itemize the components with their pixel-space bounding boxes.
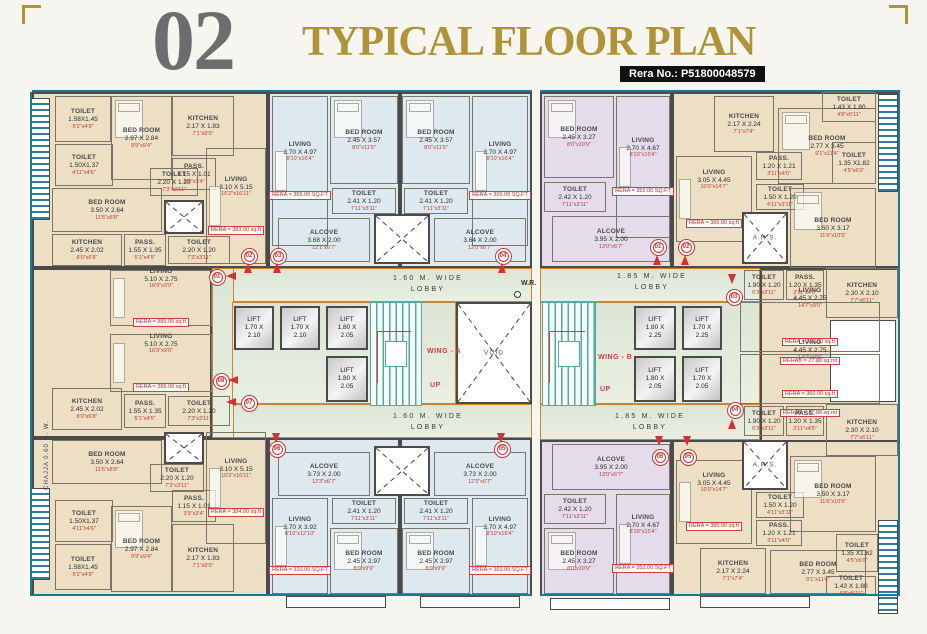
room-dimensions: 2.41 X 1.20 [347,508,380,516]
room-name: BED ROOM [88,451,125,459]
room-toilet: TOILET1.43 X 1.804'8"x5'11" [826,576,876,596]
room-name: LIVING [208,458,264,466]
balcony-strip [420,596,520,608]
lift-label: LIFT1.80 X2.05 [338,316,357,340]
room-toilet: TOILET1.58X1.455'2"x4'9" [55,96,111,142]
room-label: KITCHEN2.17 X 2.247'1"x7'4" [727,113,760,135]
flat-number-ring: 04 [730,405,741,416]
room-label: ALCOVE3.73 X 2.0012'3"x6'7" [307,463,340,485]
shaft-label: A.H.S. [744,235,786,242]
room-dimensions-imperial: 4'11"x3'11" [763,510,796,517]
room-name: LIVING [133,268,189,276]
room-name: TOILET [747,274,780,282]
room-dimensions: 1.50X1.37 [69,162,99,170]
flat-number-ring: 02 [244,251,255,262]
room-dimensions: 3.64 X 2.00 [463,237,496,245]
shaft-void: VOID [456,302,532,404]
room-toilet: TOILET2.41 X 1.207'11"x3'11" [332,498,396,524]
room-name: PASS. [788,274,821,282]
cross-hatch-icon [166,202,202,232]
lobby-width-text: 1.85 M. WIDE [615,413,685,420]
room-dimensions-imperial: 8'0"x6'8" [70,255,103,262]
cross-hatch-icon [376,216,428,262]
room-dimensions: 1.35 X1.82 [838,160,869,168]
room-dimensions: 5.10 X 2.75 [133,341,189,349]
wr-label: W.R. [521,280,536,287]
room-label: BED ROOM3.50 X 3.1711'6"x10'5" [814,483,851,505]
room-name: LIVING [208,176,264,184]
room-dimensions: 2.97 X 2.84 [123,135,160,143]
room-dimensions: 1.20 X 1.21 [762,163,795,171]
room-label: TOILET1.35 X1.824'5"x6'0" [841,542,872,564]
room-dimensions-imperial: 5'1"x4'5" [128,255,161,262]
balcony-strip [286,596,386,608]
entry-arrow-icon [244,263,252,273]
room-label: PASS.1.20 X 1.353'11"x4'5" [788,410,821,432]
flat-number-marker: 03 [726,289,743,306]
room-dimensions-imperial: 5'2"x4'9" [68,572,98,579]
room-name: TOILET [157,171,190,179]
room-name: TOILET [834,575,867,583]
room-dimensions-imperial: 7'11"x3'11" [558,202,591,209]
stair-route [377,331,411,332]
room-dimensions: 2.45 X 3.57 [417,137,454,145]
room-label: LIVING2.70 X 4.678'10"x15'4"RERA = 352.0… [612,137,674,198]
sofa-icon [113,343,125,383]
room-dimensions-imperial: 12'3"x6'7" [307,479,340,486]
room-name: ALCOVE [463,229,496,237]
chajja-balcony [878,94,898,192]
flat-number-ring: 07 [244,398,255,409]
room-bed-room: BED ROOM2.45 X 2.978'0"x9'9" [330,528,398,594]
room-dimensions: 2.17 X 2.24 [716,568,749,576]
rera-area-badge: RERA = 320.00 SQ.FT [269,566,331,575]
duct-shaft [374,214,430,264]
room-dimensions-imperial: 10'2"x16'11" [208,473,264,480]
room-kitchen: KITCHEN2.45 X 2.028'0"x6'8" [52,234,122,266]
flat-number-marker: 01 [209,269,226,286]
room-label: LIVING5.10 X 2.7516'9"x9'0"RERA = 385.00… [133,268,189,329]
room-kitchen: KITCHEN2.17 X 2.247'1"x7'4" [700,548,766,594]
room-dimensions: 5.10 X 2.75 [133,276,189,284]
room-living: LIVING5.10 X 2.7516'9"x9'0"RERA = 385.00… [110,334,212,392]
flat-number-ring: 03 [273,251,284,262]
room-dimensions-imperial: 9'9"x9'4" [123,554,160,561]
room-dimensions: 2.17 X 2.24 [727,121,760,129]
room-dimensions: 2.20 X 1.20 [182,408,215,416]
flat-number-ring: 05 [683,452,694,463]
room-living: LIVING2.70 X 3.928'10"x12'10"RERA = 320.… [272,498,328,594]
room-dimensions: 2.70 X 4.97 [469,524,531,532]
room-toilet: TOILET1.58X1.455'2"x4'9" [55,544,111,590]
room-toilet: TOILET2.42 X 1.207'11"x3'11" [544,182,606,212]
lift-label: LIFT1.70 X2.25 [693,316,712,340]
entry-arrow-icon [497,433,505,443]
up-label-b: UP [600,386,611,393]
room-name: BED ROOM [560,550,597,558]
lift-shaft: LIFT1.80 X2.05 [326,356,368,402]
room-dimensions: 2.42 X 1.20 [558,506,591,514]
lift-label: LIFT1.70 X2.10 [245,316,264,340]
room-dimensions-imperial: 13'0"x6'7" [594,472,627,479]
room-dimensions-imperial: 12'3"x6'7" [463,479,496,486]
lift-shaft: LIFT1.70 X2.10 [280,306,320,350]
room-label: LIVING2.70 X 4.978'10"x16'4"RERA = 365.0… [469,141,531,202]
room-name: TOILET [419,190,452,198]
entry-arrow-icon [226,272,236,280]
room-living: LIVING5.10 X 2.7516'9"x9'0"RERA = 385.00… [110,270,212,326]
room-name: PASS. [762,522,795,530]
flat-number-marker: 04 [727,402,744,419]
rera-area-badge: RERA = 385.00 sq.ft [686,522,742,531]
room-toilet: TOILET2.41 X 1.207'11"x3'11" [332,188,396,214]
room-name: PASS. [128,239,161,247]
room-name: BED ROOM [123,538,160,546]
lobby-label: 1.85 M. WIDELOBBY [582,272,722,292]
room-dimensions: 2.45 X 2.02 [70,406,103,414]
room-label: TOILET1.90 X 1.206'3"x3'11" [747,410,780,432]
lift-label: LIFT1.80 X2.05 [338,367,357,391]
room-name: LIVING [686,169,742,177]
room-name: KITCHEN [186,115,219,123]
shaft-a-h-s: A.H.S. [742,440,788,490]
room-label: TOILET1.58X1.455'2"x4'9" [68,556,98,578]
room-name: TOILET [69,510,99,518]
flat-number-ring: 05 [497,444,508,455]
room-living: LIVING4.45 X 2.7514'7"x9'0"RERA = 360.00… [740,354,880,404]
room-dimensions: 3.50 X 3.17 [814,491,851,499]
room-name: BED ROOM [814,483,851,491]
room-name: KITCHEN [727,113,760,121]
room-name: KITCHEN [716,560,749,568]
rera-area-badge: RERA = 365.00 SQ.FT [469,191,531,200]
room-dimensions: 2.70 X 4.67 [612,145,674,153]
room-label: BED ROOM2.45 X 3.578'0"x11'9" [417,129,454,151]
room-toilet: TOILET2.20 X 1.207'3"x3'11" [168,236,230,264]
room-dimensions-imperial: 8'0"x11'9" [417,145,454,152]
rera-area-badge: RERA = 384.00 sq.ft [208,508,264,517]
lobby-label: 1.85 M. WIDELOBBY [580,412,720,432]
room-label: PASS.1.20 X 1.213'11"x4'0" [762,155,795,177]
room-dimensions-imperial: 3'9"x3'4" [177,511,210,518]
room-dimensions: 2.41 X 1.20 [419,508,452,516]
room-dimensions-imperial: 7'7"x6'11" [845,435,878,442]
room-dimensions: 1.55 X 1.35 [128,247,161,255]
lift-shaft: LIFT1.80 X2.25 [634,306,676,350]
entry-arrow-icon [728,274,736,284]
flat-number-ring: 08 [216,376,227,387]
chajja-balcony [878,520,898,614]
room-label: TOILET1.50 X 1.204'11"x3'11" [763,494,796,516]
room-name: LIVING [469,516,531,524]
entry-arrow-icon [226,398,236,406]
lobby-label: 1.60 M. WIDELOBBY [358,412,498,432]
room-dimensions-imperial: 7'3"x3'11" [160,483,193,490]
room-dimensions-imperial: 10'0"x14'7" [686,184,742,191]
room-dimensions: 3.95 X 2.00 [594,236,627,244]
room-label: BED ROOM2.45 X 3.578'0"x11'9" [345,129,382,151]
room-dimensions: 3.05 X 4.45 [686,177,742,185]
flat-number-marker: 05 [494,441,511,458]
flat-number-ring: 01 [653,242,664,253]
room-dimensions: 3.95 X 2.00 [594,464,627,472]
duct-shaft [164,432,204,464]
room-dimensions: 1.15 X 1.01 [177,503,210,511]
room-alcove: ALCOVE3.64 X 2.0012'0"x6'7" [434,218,526,262]
room-name: PASS. [128,400,161,408]
room-dimensions: 2.77 X 3.45 [808,143,845,151]
rera-area-badge: RERA = 352.00 SQ.FT [612,187,674,196]
lobby-label: 1.60 M. WIDELOBBY [358,274,498,294]
room-label: TOILET2.42 X 1.207'11"x3'11" [558,186,591,208]
room-dimensions-imperial: 14'7"x9'0" [780,355,840,362]
entry-arrow-icon [655,436,663,446]
room-dimensions-imperial: 7'3"x3'11" [182,416,215,423]
room-living: LIVING3.05 X 4.4510'0"x14'7"RERA = 385.0… [676,156,752,242]
room-dimensions-imperial: 3'11"x4'0" [762,171,795,178]
chajja-balcony [30,98,50,220]
room-living: LIVING2.70 X 4.678'10"x15'4"RERA = 352.0… [616,494,670,594]
lift-label: LIFT1.70 X2.05 [693,367,712,391]
duct-shaft [374,446,430,496]
room-dimensions-imperial: 13'0"x6'7" [594,244,627,251]
room-label: KITCHEN2.45 X 2.028'0"x6'8" [70,239,103,261]
exterior-wall-accent [540,90,900,92]
room-dimensions: 1.58X1.45 [68,564,98,572]
room-dimensions-imperial: 7'11"x3'11" [419,206,452,213]
room-dimensions: 2.41 X 1.20 [347,198,380,206]
room-pass: PASS.1.55 X 1.355'1"x4'5" [124,394,166,428]
room-bed-room: BED ROOM3.50 X 3.1711'6"x10'5" [790,456,876,532]
room-label: BED ROOM2.77 X 3.459'1"x11'4" [799,561,836,583]
room-name: ALCOVE [307,463,340,471]
room-dimensions-imperial: 5'1"x4'5" [128,416,161,423]
room-dimensions: 2.70 X 4.97 [469,149,531,157]
room-dimensions-imperial: 6'3"x3'11" [747,426,780,433]
room-dimensions-imperial: 7'3"x3'11" [182,255,215,262]
room-dimensions-imperial: 8'0"x9'9" [345,566,382,573]
room-dimensions-imperial: 7'11"x3'11" [347,206,380,213]
up-label-a: UP [430,382,441,389]
room-name: ALCOVE [463,463,496,471]
room-dimensions: 1.90 X 1.20 [747,418,780,426]
flat-number-ring: 06 [655,452,666,463]
room-dimensions-imperial: 9'1"x11'4" [799,577,836,584]
room-label: TOILET1.50X1.374'11"x4'6" [69,510,99,532]
room-label: TOILET1.50 X 1.204'11"x3'11" [763,186,796,208]
room-label: PASS.1.55 X 1.355'1"x4'5" [128,400,161,422]
room-dimensions-imperial: 8'10"x16'4" [469,156,531,163]
room-name: ALCOVE [594,456,627,464]
floor-plan-page: 02 TYPICAL FLOOR PLAN Rera No.: P5180004… [0,0,927,634]
room-label: TOILET1.35 X1.824'5"x6'0" [838,152,869,174]
room-dimensions-imperial: 10'2"x16'11" [208,191,264,198]
room-name: TOILET [558,186,591,194]
room-dimensions: 1.58X1.45 [68,116,98,124]
room-name: TOILET [68,556,98,564]
entry-arrow-icon [728,419,736,429]
room-name: LIVING [269,516,331,524]
room-name: KITCHEN [70,239,103,247]
room-name: LIVING [780,287,840,295]
room-label: BED ROOM2.97 X 2.849'9"x9'4" [123,538,160,560]
room-dimensions: 3.73 X 2.00 [463,471,496,479]
flat-number-marker: 02 [678,239,695,256]
room-label: TOILET2.41 X 1.207'11"x3'11" [419,500,452,522]
room-kitchen: KITCHEN2.17 X 2.247'1"x7'4" [714,96,774,152]
rera-area-badge: RERA = 385.00 sq.ft [133,383,189,392]
stair-route [549,331,550,383]
room-label: TOILET2.41 X 1.207'11"x3'11" [347,190,380,212]
room-name: PASS. [177,163,210,171]
room-dimensions-imperial: 8'10"x16'4" [269,156,331,163]
rera-area-badge: RERA = 366.00 SQ.FT [269,191,331,200]
lobby-width-text: 1.60 M. WIDE [393,413,463,420]
room-name: TOILET [182,239,215,247]
chajja-balcony [30,488,50,580]
room-label: TOILET2.41 X 1.207'11"x3'11" [347,500,380,522]
room-dimensions-imperial: 7'11"x3'11" [347,516,380,523]
room-dimensions-imperial: 8'10"x15'4" [612,529,674,536]
room-alcove: ALCOVE3.95 X 2.0013'0"x6'7" [552,444,670,490]
room-label: KITCHEN2.30 X 2.107'7"x6'11" [845,282,878,304]
room-bed-room: BED ROOM2.45 X 3.278'0"x10'9" [544,96,614,178]
room-dimensions: 2.70 X 3.92 [269,524,331,532]
exterior-wall-accent [32,594,532,596]
room-bed-room: BED ROOM3.50 X 2.6411'6"x8'8" [52,188,162,232]
room-label: BED ROOM3.50 X 2.6411'6"x8'8" [88,451,125,473]
room-name: TOILET [558,498,591,506]
room-dimensions: 2.77 X 3.45 [799,569,836,577]
room-toilet: TOILET2.20 X 1.207'3"x3'11" [150,464,204,492]
room-name: BED ROOM [417,550,454,558]
lobby-text: LOBBY [633,424,667,431]
lift-label: LIFT1.70 X2.10 [291,316,310,340]
room-dimensions: 2.41 X 1.20 [419,198,452,206]
entry-arrow-icon [681,255,689,265]
room-label: BED ROOM3.50 X 2.6411'6"x8'8" [88,199,125,221]
room-name: BED ROOM [88,199,125,207]
lobby-width-text: 1.60 M. WIDE [393,275,463,282]
flat-number-marker: 05 [680,449,697,466]
room-label: TOILET1.50X1.374'11"x4'6" [69,154,99,176]
room-toilet: TOILET1.50X1.374'11"x4'6" [55,500,113,542]
room-label: TOILET1.58X1.455'2"x4'9" [68,108,98,130]
room-dimensions: 1.43 X 1.80 [834,583,867,591]
staircase [542,302,596,406]
room-dimensions-imperial: 9'9"x9'4" [123,143,160,150]
room-dimensions-imperial: 8'10"x16'4" [469,531,531,538]
room-name: KITCHEN [845,282,878,290]
room-dimensions: 1.20 X 1.21 [762,530,795,538]
room-dimensions: 2.30 X 2.10 [845,427,878,435]
room-label: KITCHEN2.17 X 1.837'1"x6'0" [186,547,219,569]
room-label: ALCOVE3.73 X 2.0012'3"x6'7" [463,463,496,485]
room-pass: PASS.1.20 X 1.353'11"x4'5" [786,406,824,436]
room-label: TOILET2.20 X 1.207'3"x3'11" [182,400,215,422]
room-dimensions: 3.50 X 3.17 [814,225,851,233]
room-pass: PASS.1.20 X 1.213'11"x4'0" [756,152,802,180]
room-dimensions: 3.50 X 2.64 [88,459,125,467]
entry-arrow-icon [273,263,281,273]
room-dimensions-imperial: 3'11"x4'5" [788,426,821,433]
rera-area-badge: RERA = 360.00 sq.ft [782,390,838,399]
room-kitchen: KITCHEN2.17 X 1.837'1"x6'0" [172,524,234,592]
room-label: KITCHEN2.17 X 1.837'1"x6'0" [186,115,219,137]
room-dimensions-imperial: 6'3"x3'11" [747,290,780,297]
room-name: PASS. [762,155,795,163]
room-dimensions: 2.20 X 1.20 [182,247,215,255]
room-dimensions-imperial: 7'1"x6'0" [186,563,219,570]
room-label: LIVING5.10 X 2.7516'9"x9'0"RERA = 385.00… [133,333,189,394]
stair-route [549,331,585,332]
room-dimensions: 3.10 X 5.15 [208,184,264,192]
room-label: PASS.1.15 X 1.013'9"x3'4" [177,495,210,517]
room-label: LIVING3.10 X 5.1510'2"x16'11"RERA = 384.… [208,458,264,519]
lift-shaft: LIFT1.70 X2.05 [682,356,722,402]
room-dimensions-imperial: 5'2"x4'9" [68,124,98,131]
room-label: TOILET2.42 X 1.207'11"x3'11" [558,498,591,520]
room-dimensions: 3.50 X 2.64 [88,207,125,215]
room-dimensions-imperial: 11'6"x8'8" [88,467,125,474]
room-name: BED ROOM [345,129,382,137]
room-toilet: TOILET1.50X1.374'11"x4'6" [55,144,113,186]
room-dimensions-imperial: 7'1"x7'4" [727,129,760,136]
room-dimensions-imperial: 8'0"x10'9" [560,142,597,149]
room-label: BED ROOM2.45 X 2.978'0"x9'9" [417,550,454,572]
lift-shaft: LIFT1.70 X2.10 [234,306,274,350]
wing-a-label: WING - A [427,348,461,355]
balcony-strip [550,598,670,610]
room-toilet: TOILET1.43 X 1.804'8"x5'11" [822,92,876,122]
room-name: TOILET [747,410,780,418]
room-name: KITCHEN [70,398,103,406]
room-dimensions: 3.10 X 5.15 [208,466,264,474]
lobby-text: LOBBY [411,424,445,431]
room-toilet: TOILET2.20 X 1.207'3"x3'11" [168,396,230,426]
room-label: BED ROOM2.45 X 2.978'0"x9'9" [345,550,382,572]
shaft-label: A.H.S. [744,462,786,469]
room-dimensions-imperial: 8'10"x15'4" [612,152,674,159]
room-dimensions: 2.45 X 3.27 [560,558,597,566]
stair-landing [558,341,580,367]
exterior-wall-accent [32,90,532,92]
exterior-wall-accent [540,594,900,596]
room-name: ALCOVE [594,228,627,236]
room-dimensions-imperial: 7'11"x3'11" [558,514,591,521]
wing-b-label: WING - B [598,354,632,361]
bed-icon [782,112,810,150]
balcony-strip [700,596,810,608]
room-toilet: TOILET1.90 X 1.206'3"x3'11" [744,406,784,436]
floor-plan-canvas: TOILET1.58X1.455'2"x4'9"BED ROOM2.97 X 2… [0,0,927,634]
flat-number-ring: 02 [681,242,692,253]
exterior-wall-accent [30,92,32,596]
flat-number-marker: 01 [650,239,667,256]
lobby-text: LOBBY [411,286,445,293]
room-name: TOILET [763,494,796,502]
room-label: ALCOVE3.95 X 2.0013'0"x6'7" [594,228,627,250]
room-label: LIVING2.70 X 3.928'10"x12'10"RERA = 320.… [269,516,331,577]
room-toilet: TOILET1.90 X 1.206'3"x3'11" [744,270,784,300]
flat-number-marker: 08 [213,373,230,390]
lobby-text: LOBBY [635,284,669,291]
room-label: TOILET1.90 X 1.206'3"x3'11" [747,274,780,296]
room-label: KITCHEN2.17 X 2.247'1"x7'4" [716,560,749,582]
room-dimensions: 1.35 X1.82 [841,550,872,558]
room-dimensions: 2.70 X 4.97 [269,149,331,157]
room-name: TOILET [182,400,215,408]
